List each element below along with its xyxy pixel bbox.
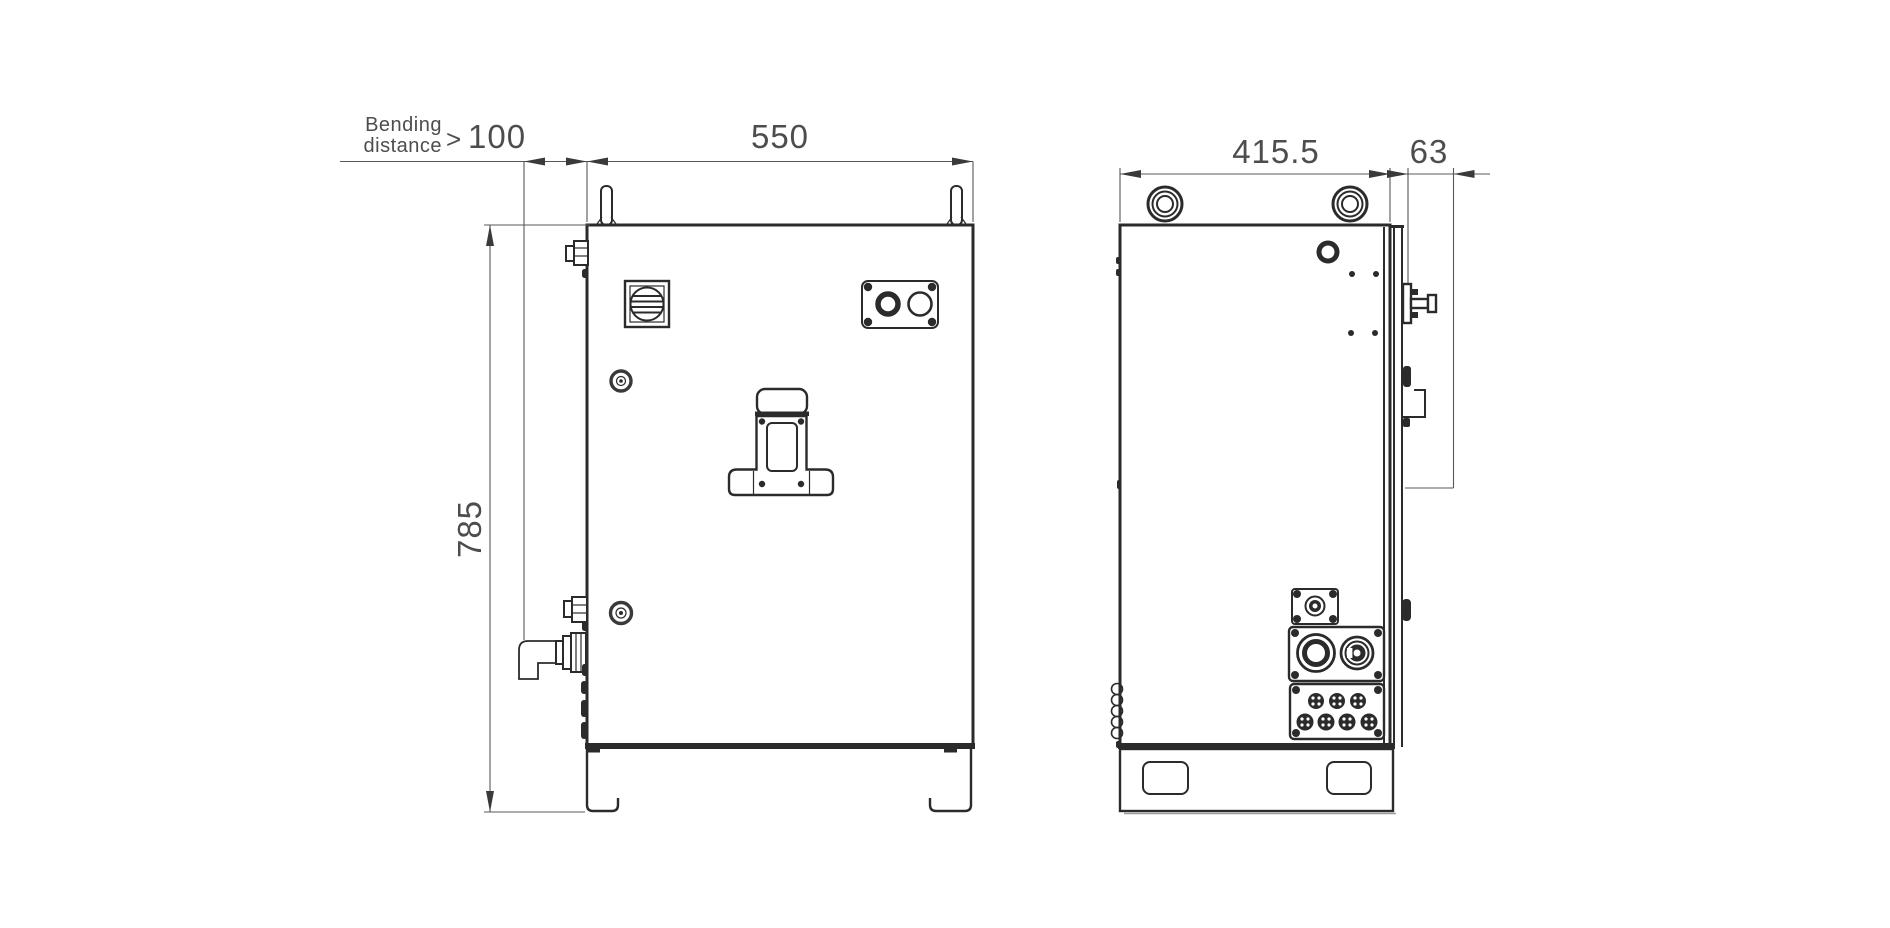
socket [1308, 693, 1324, 709]
hinge-knuckle [581, 722, 588, 739]
front-view [519, 186, 975, 811]
base-plinth [587, 749, 971, 811]
button-box-profile [1403, 284, 1436, 323]
cable-gland [564, 597, 587, 622]
bending-distance-label-line2: distance [336, 136, 442, 157]
door-latch [1402, 599, 1411, 621]
bending-distance-label-line1: Bending [336, 115, 442, 136]
socket [1361, 714, 1378, 731]
socket [1339, 714, 1356, 731]
cabinet-bottom-rail [585, 743, 975, 749]
base-cutout [1143, 762, 1188, 794]
hinge-pin [611, 603, 632, 624]
side-view [1112, 168, 1454, 814]
hinge-knuckle [581, 700, 588, 717]
screw-dot [1349, 271, 1355, 277]
base-cutout [1327, 762, 1371, 794]
mounting-hole [1319, 243, 1337, 261]
edge-stud [1116, 269, 1121, 276]
drawing-linework [0, 0, 1890, 928]
conduit-elbow [519, 641, 560, 679]
front-height-dimension: 785 [451, 487, 489, 571]
edge-stud [582, 621, 588, 631]
lifting-pin [951, 186, 962, 225]
hinge-pin [611, 371, 631, 391]
edge-stud [1117, 480, 1122, 489]
screw-dot [1348, 330, 1354, 336]
connector-panel-multi [1290, 684, 1384, 739]
lifting-ring [1333, 187, 1367, 221]
base-plinth [1120, 749, 1396, 814]
front-width-dimension: 550 [740, 118, 820, 156]
lifting-pin [601, 186, 612, 225]
lifting-ring [1148, 187, 1182, 221]
socket [1350, 693, 1366, 709]
screw-dot [1372, 330, 1378, 336]
bending-operator: > [446, 124, 461, 155]
socket [1297, 714, 1314, 731]
door-depth-dimension: 63 [1403, 133, 1455, 171]
cable-gland [566, 241, 588, 265]
cable-gland-large [556, 633, 586, 672]
socket [1318, 714, 1335, 731]
bending-value: 100 [468, 118, 526, 156]
edge-stud [582, 664, 588, 676]
bending-distance-label: Bending distance [336, 115, 442, 157]
connector-panel-small [1292, 589, 1338, 624]
technical-drawing-canvas: Bending distance > 100 550 785 415.5 63 [0, 0, 1890, 928]
handle-profile [1403, 366, 1425, 427]
side-depth-dimension: 415.5 [1226, 133, 1326, 171]
edge-stud [1116, 257, 1121, 264]
edge-stud [582, 269, 588, 278]
hinge-knuckle [581, 681, 588, 694]
screw-dot [1373, 271, 1379, 277]
push-button-panel [862, 281, 938, 328]
disconnect-switch [625, 281, 669, 327]
socket [1329, 693, 1345, 709]
connector-panel-medium [1289, 627, 1384, 681]
